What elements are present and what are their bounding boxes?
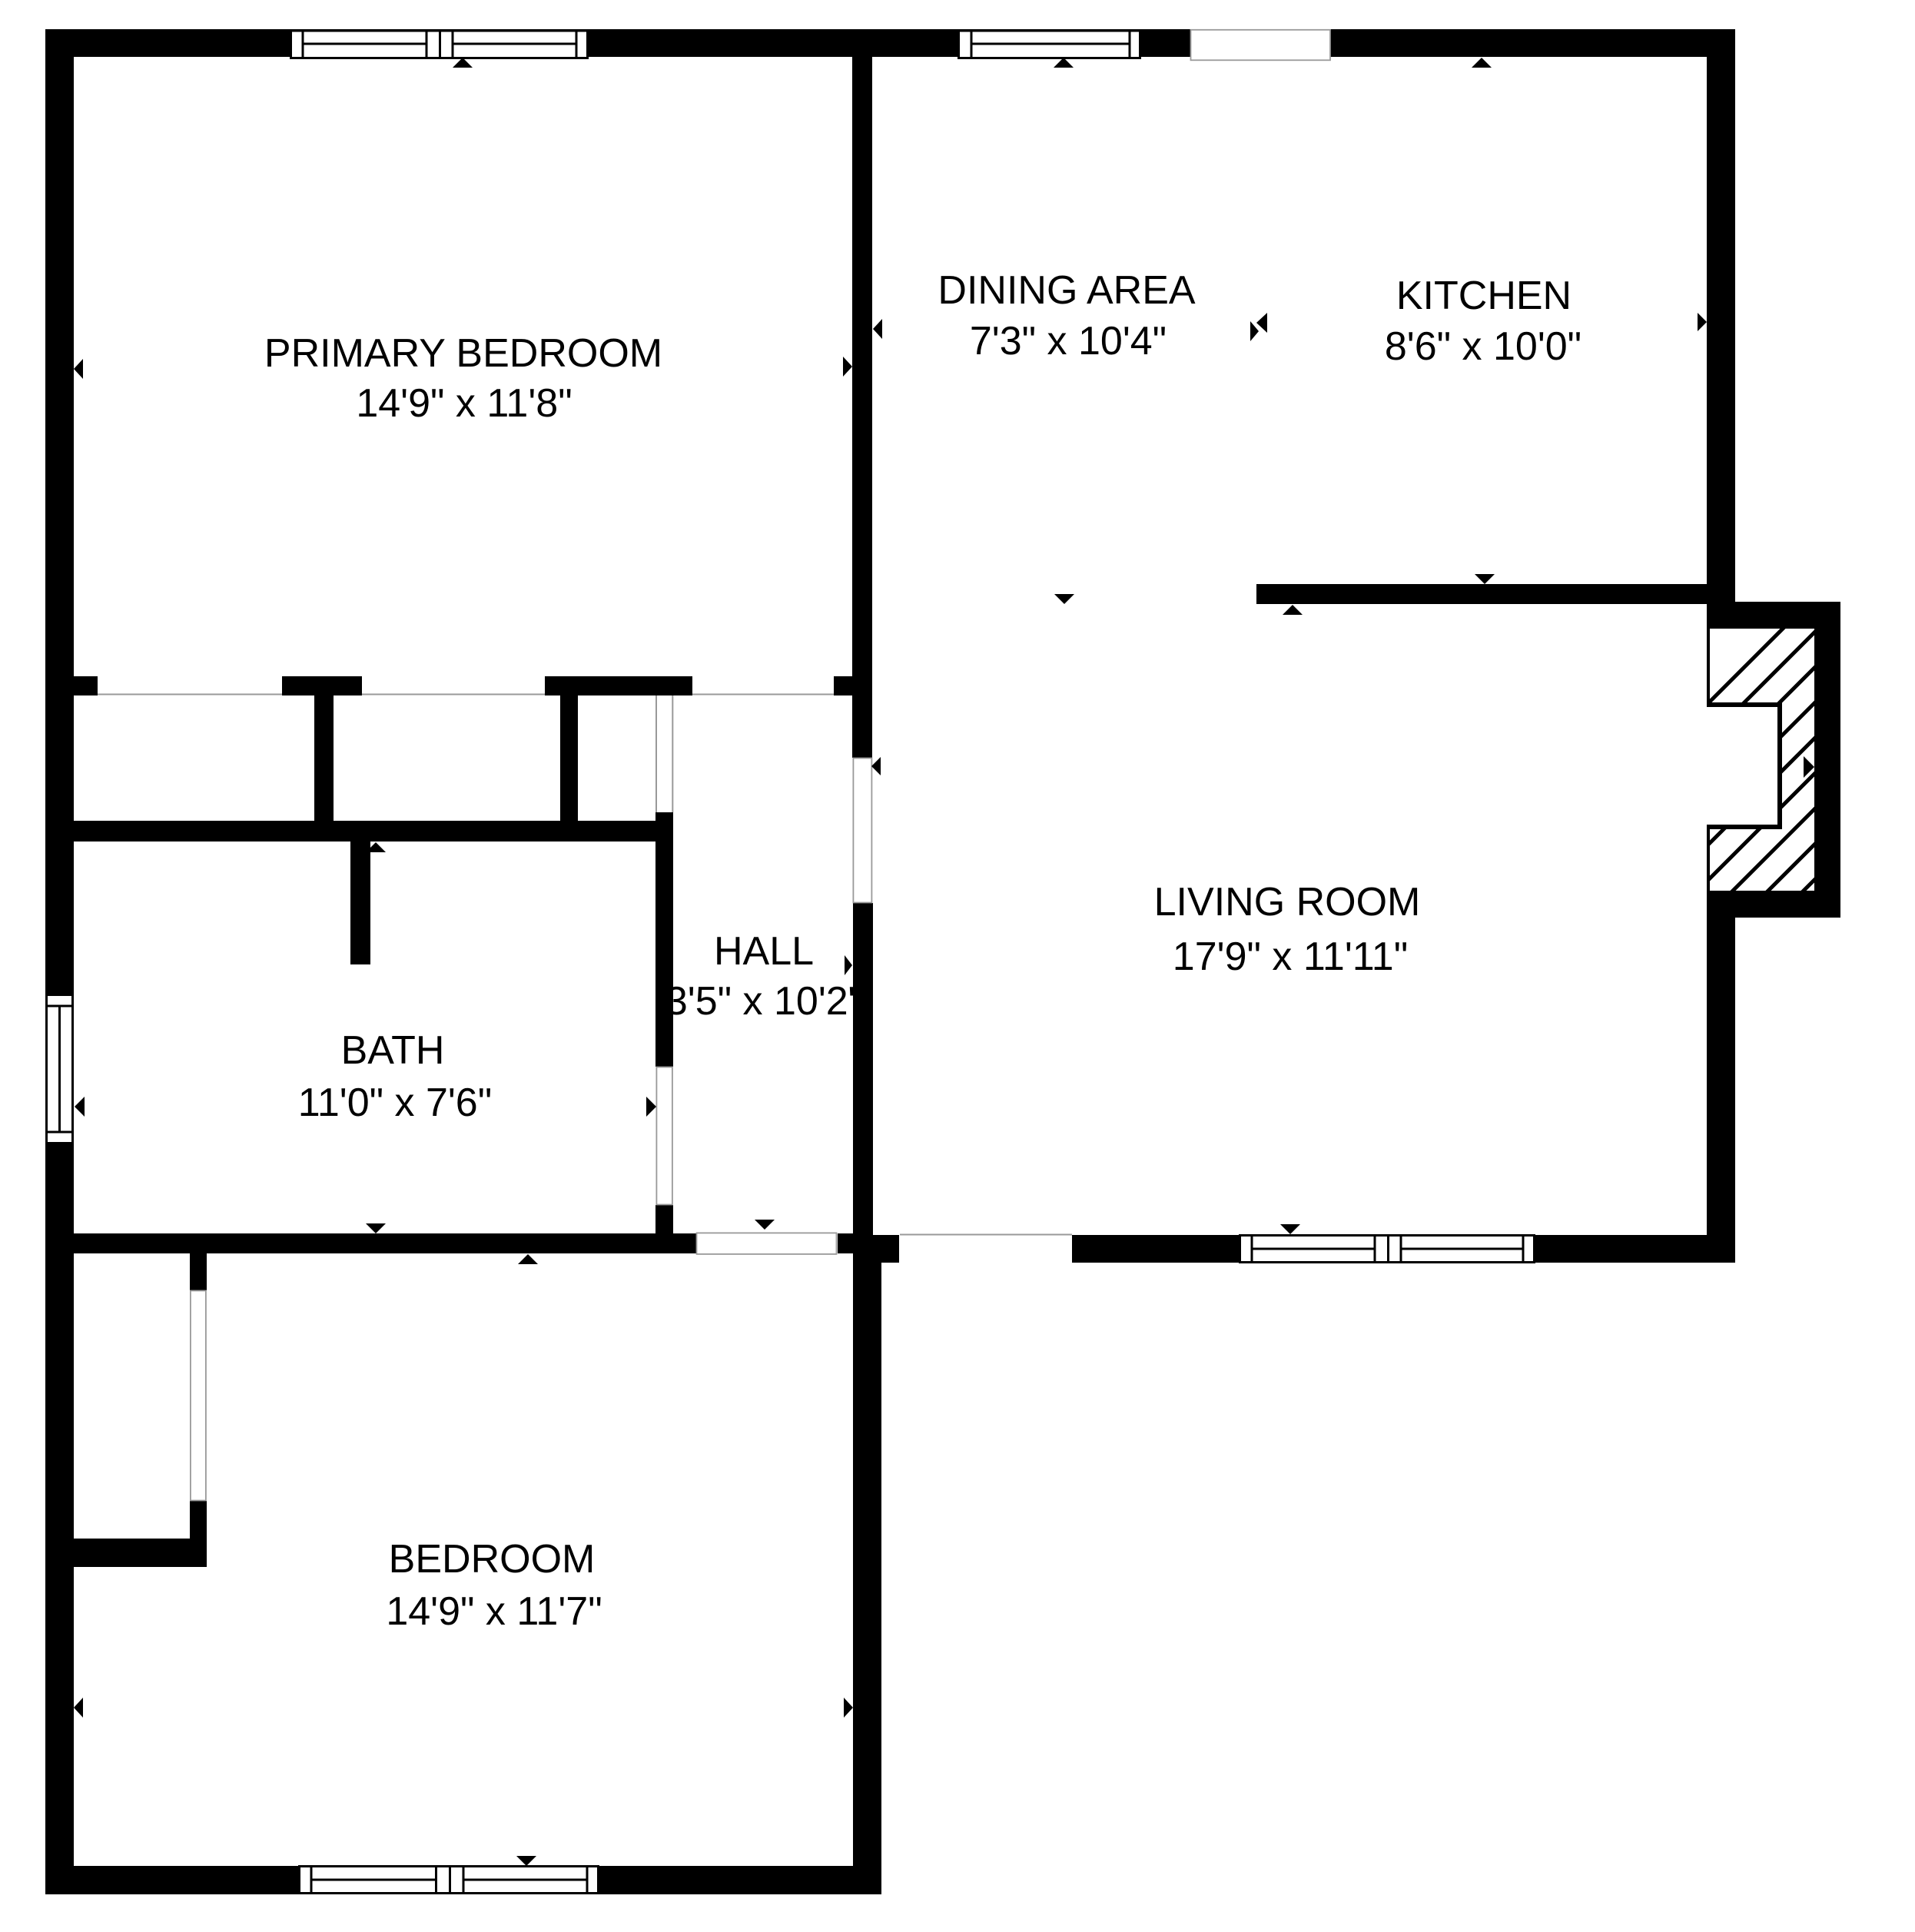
svg-text:BATH: BATH — [341, 1028, 445, 1073]
svg-text:BEDROOM: BEDROOM — [389, 1537, 596, 1582]
svg-text:3'5" x 10'2": 3'5" x 10'2" — [665, 979, 862, 1024]
svg-text:HALL: HALL — [714, 929, 814, 974]
svg-text:17'9" x 11'11": 17'9" x 11'11" — [1173, 934, 1408, 979]
svg-text:8'6" x 10'0": 8'6" x 10'0" — [1385, 324, 1581, 369]
svg-text:LIVING ROOM: LIVING ROOM — [1154, 880, 1421, 925]
svg-text:11'0" x 7'6": 11'0" x 7'6" — [298, 1081, 492, 1125]
svg-text:PRIMARY BEDROOM: PRIMARY BEDROOM — [264, 331, 662, 376]
svg-text:KITCHEN: KITCHEN — [1396, 274, 1571, 318]
svg-text:14'9" x 11'7": 14'9" x 11'7" — [386, 1589, 602, 1634]
svg-text:14'9" x 11'8": 14'9" x 11'8" — [356, 381, 572, 426]
svg-text:7'3" x 10'4": 7'3" x 10'4" — [970, 319, 1167, 363]
svg-text:DINING AREA: DINING AREA — [938, 268, 1195, 313]
